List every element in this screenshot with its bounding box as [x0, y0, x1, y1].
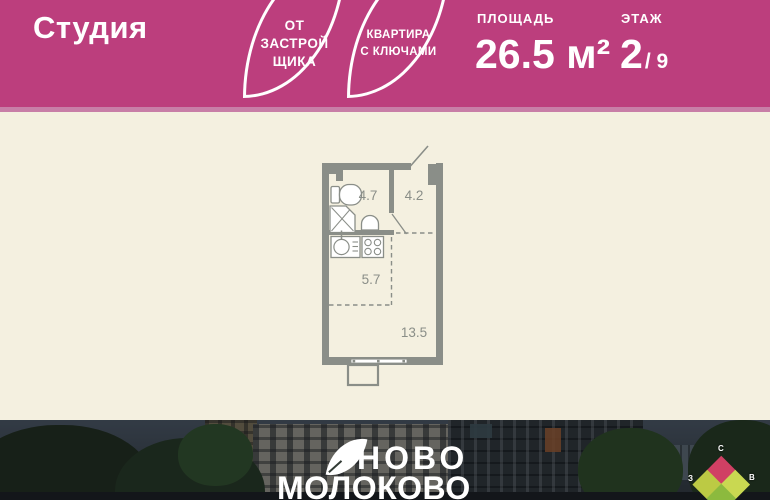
window-icon [351, 359, 407, 363]
keys-badge-line: КВАРТИРА [366, 27, 430, 44]
developer-badge-line: ЩИКА [273, 53, 316, 71]
keys-badge-line: С КЛЮЧАМИ [360, 44, 436, 61]
bathroom-area-label: 4.7 [359, 188, 378, 203]
toilet-icon [331, 185, 362, 206]
shower-icon [330, 206, 355, 233]
floor-value: 2/ 9 [620, 31, 668, 78]
header: Студия ОТ ЗАСТРОЙ ЩИКА КВАРТИРА С КЛЮЧАМ… [0, 0, 770, 112]
interior-door-icon [392, 214, 407, 234]
brand-name-line2: МОЛОКОВО [277, 470, 471, 500]
listing-card[interactable]: Студия ОТ ЗАСТРОЙ ЩИКА КВАРТИРА С КЛЮЧАМ… [0, 0, 770, 500]
area-value: 26.5 м² [475, 31, 610, 78]
compass-east-label: В [749, 473, 755, 482]
floor-number: 2 [620, 31, 643, 77]
developer-badge: ОТ ЗАСТРОЙ ЩИКА [243, 0, 346, 98]
floor-total: / 9 [645, 50, 668, 73]
developer-badge-line: ЗАСТРОЙ [260, 35, 328, 53]
hallway-area-label: 4.2 [405, 188, 424, 203]
entrance-door-icon [411, 146, 429, 166]
compass-icon: С З В [690, 442, 760, 500]
compass-west-label: З [688, 474, 693, 483]
area-label: ПЛОЩАДЬ [477, 11, 554, 26]
floorplan-canvas: 4.7 4.2 5.7 13.5 [0, 112, 770, 420]
stove-icon [362, 237, 384, 258]
developer-badge-line: ОТ [285, 17, 305, 35]
living-area-label: 13.5 [401, 325, 427, 340]
floor-plan: 4.7 4.2 5.7 13.5 [320, 143, 450, 393]
floor-label: ЭТАЖ [621, 11, 663, 26]
balcony-icon [348, 365, 378, 385]
kitchen-area-label: 5.7 [362, 272, 381, 287]
keys-badge: КВАРТИРА С КЛЮЧАМИ [347, 0, 450, 98]
compass-north-label: С [718, 444, 724, 453]
apartment-type-title: Студия [33, 10, 148, 46]
